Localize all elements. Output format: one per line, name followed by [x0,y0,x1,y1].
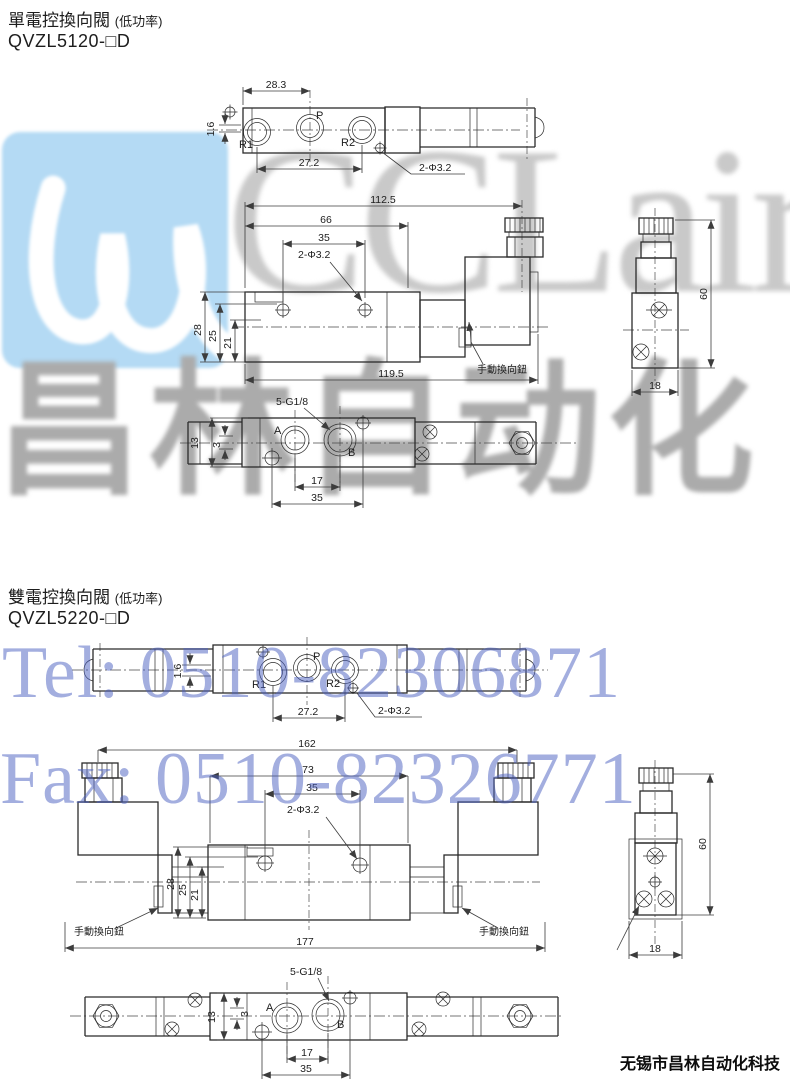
s1-front-view-drawing: 112.5 66 35 2-Φ3.2 28 25 21 119.5 手動換向鈕 [165,192,595,392]
manual-override-label-left: 手動換向鈕 [74,925,124,938]
dim-1-6-label: 1.6 [205,122,217,137]
dim-35-label: 35 [300,1063,312,1075]
dim-3-label: 3 [211,442,223,448]
dim-119-5-label: 119.5 [378,368,404,380]
s1-top-view-drawing: R1 P R2 28.3 1.6 27.2 2-Φ3.2 [205,78,570,188]
valve-outline [629,768,682,919]
dim-28-label: 28 [192,324,204,336]
dim-35-label: 35 [311,492,323,504]
dim-27-2-label: 27.2 [299,157,320,169]
centerlines [70,976,564,1066]
port-a-label: A [274,425,282,437]
dimension-lines [219,87,465,174]
ports [262,415,535,468]
dim-18-label: 18 [649,380,661,392]
dim-21-label: 21 [222,337,234,349]
callout-2-phi-3-2: 2-Φ3.2 [298,249,330,261]
port-a-label: A [266,1002,274,1014]
centerlines [207,90,527,168]
section1-model: QVZL5120-□D [8,31,130,52]
callout-2-phi-3-2: 2-Φ3.2 [419,162,451,174]
port-r2-label: R2 [341,137,355,149]
footer-company-name: 无锡市昌林自动化科技 [620,1050,780,1074]
port-b-label: B [337,1019,344,1031]
dim-13-label: 13 [206,1011,218,1023]
manual-override-label: 手動換向鈕 [477,363,527,376]
dim-60-label: 60 [698,288,710,300]
section1-title-note: (低功率) [115,14,163,29]
valve-outline [188,418,536,467]
fax-watermark-text: Fax: 0510-82326771 [0,742,637,816]
section2-title: 雙電控換向閥 (低功率) [8,583,162,608]
callout-5-g1-8: 5-G1/8 [276,396,308,408]
port-b-label: B [348,447,355,459]
tel-watermark-text: Tel: 0510-82306871 [2,636,621,710]
datasheet-page: CCLair 昌林自动化 單電控換向閥 (低功率) QVZL5120-□D R [0,0,790,1088]
dim-28-3-label: 28.3 [266,79,287,91]
section2-model: QVZL5220-□D [8,608,130,629]
dim-13-label: 13 [189,437,201,449]
dim-25-label: 25 [177,884,189,896]
dimension-lines [200,202,538,384]
dim-21-label: 21 [189,889,201,901]
dim-18-label: 18 [649,943,661,955]
dim-3-label: 3 [239,1011,251,1017]
dim-66-label: 66 [320,214,332,226]
connector-outline [505,218,543,257]
dim-25-label: 25 [207,330,219,342]
dim-28-label: 28 [165,878,177,890]
s2-bottom-view-drawing: A B 5-G1/8 13 3 17 35 [68,962,568,1088]
s1-bottom-view-drawing: A B 5-G1/8 13 3 17 35 [178,392,588,527]
dim-35-label: 35 [318,232,330,244]
dim-177-label: 177 [296,936,314,948]
port-p-label: P [316,110,323,122]
section1-title-text: 單電控換向閥 [8,11,110,30]
s1-side-view-drawing: 60 18 [615,200,725,405]
dim-17-label: 17 [311,475,323,487]
callout-5-g1-8: 5-G1/8 [290,966,322,978]
dim-17-label: 17 [301,1047,313,1059]
section2-title-text: 雙電控換向閥 [8,588,110,607]
manual-override-label-right: 手動換向鈕 [479,925,529,938]
section2-title-note: (低功率) [115,591,163,606]
centerlines [233,200,550,327]
port-r1-label: R1 [239,139,253,151]
dim-112-5-label: 112.5 [370,194,396,206]
section1-title: 單電控換向閥 (低功率) [8,6,162,31]
dimension-lines [632,220,715,396]
valve-outline [245,257,538,362]
dim-60-label: 60 [697,838,709,850]
